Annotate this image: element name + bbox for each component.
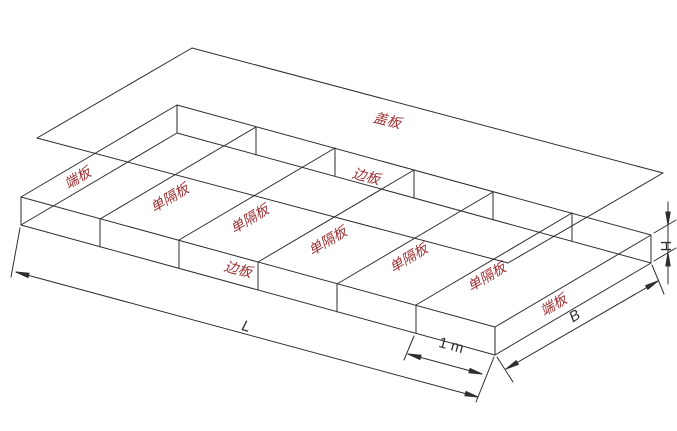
dim-L-extension-left: [11, 228, 20, 277]
cover-plate-outline: [37, 48, 663, 263]
label-side-plate-front: 边板: [223, 258, 256, 281]
label-partition-4: 单隔板: [386, 239, 432, 275]
partition-5-top-edge: [416, 213, 572, 305]
cover-bottom-edge: [37, 138, 508, 263]
cover-left-edge: [37, 48, 192, 138]
label-cover-plate: 盖板: [372, 109, 405, 132]
dim-1m-arrow-left: [408, 354, 421, 360]
dim-H-arrow-bottom: [666, 253, 670, 266]
dim-H-arrow-top: [666, 212, 670, 225]
label-partition-3: 单隔板: [305, 222, 351, 258]
partition-3-top-edge: [258, 170, 414, 262]
label-dim-width: B: [566, 306, 583, 326]
label-side-plate-back: 边板: [351, 165, 384, 188]
cover-top-edge: [192, 48, 663, 173]
dim-B-extension-left: [497, 357, 513, 382]
dim-L-extension-right: [476, 357, 494, 402]
label-partition-1: 单隔板: [147, 179, 193, 215]
partition-1-top-edge: [100, 127, 256, 219]
box-left-top-edge: [21, 105, 177, 197]
label-end-plate-right: 端板: [537, 290, 571, 319]
label-partition-2: 单隔板: [227, 200, 273, 236]
label-dim-length: L: [240, 317, 252, 336]
label-dim-spacing: 1 m: [437, 334, 466, 357]
dim-L-arrow-left: [16, 272, 29, 278]
dim-L-arrow-right: [465, 392, 478, 398]
label-end-plate-left: 端板: [61, 163, 95, 192]
cover-right-edge: [508, 173, 663, 263]
dim-B-extension-right: [652, 265, 664, 294]
dim-H-extension-top: [654, 220, 676, 233]
isometric-diagram: L 1 m B H 盖板 边板 边板 端板 端板 单隔板 单隔板 单隔板 单隔板…: [0, 0, 677, 431]
partition-2-top-edge: [179, 148, 335, 240]
drawing-canvas: L 1 m B H 盖板 边板 边板 端板 端板 单隔板 单隔板 单隔板 单隔板…: [0, 0, 677, 431]
label-dim-height: H: [657, 241, 674, 252]
dim-1m-arrow-right: [469, 369, 482, 375]
dimension-width: [497, 265, 664, 382]
dim-B-line: [506, 281, 658, 369]
dim-B-arrow-right: [646, 281, 658, 289]
dim-B-arrow-left: [506, 361, 518, 369]
partition-4-top-edge: [337, 192, 493, 284]
